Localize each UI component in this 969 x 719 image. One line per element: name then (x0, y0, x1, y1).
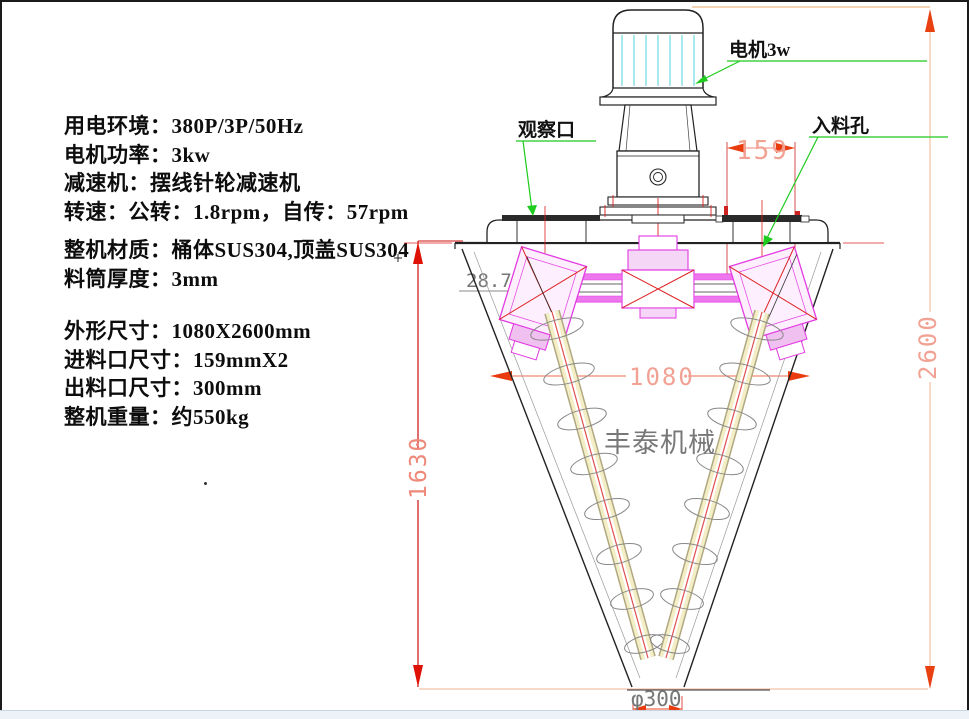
footer-strip (0, 710, 969, 719)
drive-mechanism (491, 236, 825, 366)
motor-label: 电机3w (729, 38, 791, 61)
watermark-text: 丰泰机械 (604, 428, 716, 458)
inlet-port-label: 入料孔 (812, 114, 869, 137)
technical-drawing: 2600 1630 159 1080 (0, 0, 969, 719)
dim-1630-label: 1630 (406, 436, 432, 499)
dim-2600-label: 2600 (914, 314, 942, 380)
dim-1080-label: 1080 (629, 363, 695, 391)
drawing-page: 用电环境：380P/3P/50Hz 电机功率：3kw 减速机：摆线针轮减速机 转… (0, 0, 969, 719)
motor (600, 10, 716, 105)
observation-port-label: 观察口 (518, 118, 575, 141)
dimension-body-diameter: 1080 (490, 363, 810, 391)
bevel-gearbox-left (491, 247, 586, 366)
observation-port-cover (502, 215, 600, 221)
dimension-cone-height: 1630 (406, 241, 463, 687)
callout-motor: 电机3w (695, 38, 927, 84)
leader-arrow (527, 205, 537, 216)
dim-outlet-label: φ300 (631, 687, 682, 711)
callout-observation-port: 观察口 (516, 118, 596, 216)
dim-159-label: 159 (736, 136, 789, 166)
inlet-clamp-bolt (724, 206, 728, 215)
